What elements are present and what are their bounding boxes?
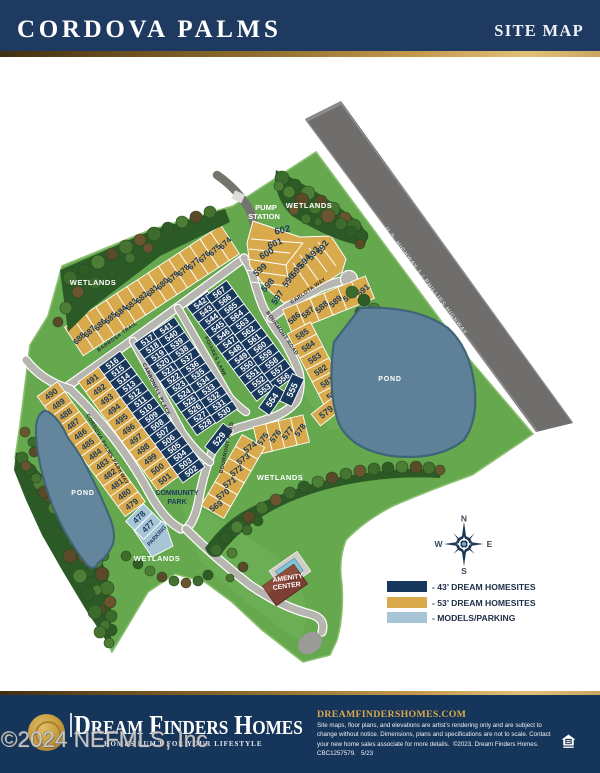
- svg-text:POND: POND: [378, 376, 401, 383]
- svg-text:WETLANDS: WETLANDS: [134, 554, 181, 563]
- svg-text:WETLANDS: WETLANDS: [70, 278, 117, 287]
- svg-text:- 53’ DREAM HOMESITES: - 53’ DREAM HOMESITES: [432, 598, 536, 608]
- svg-text:W: W: [434, 539, 443, 549]
- svg-text:STATION: STATION: [248, 212, 280, 221]
- svg-text:N: N: [461, 514, 467, 524]
- svg-text:WETLANDS: WETLANDS: [286, 201, 333, 210]
- svg-text:COMMUNITY: COMMUNITY: [155, 490, 198, 497]
- svg-text:- MODELS/PARKING: - MODELS/PARKING: [432, 613, 516, 623]
- svg-text:WETLANDS: WETLANDS: [257, 473, 304, 482]
- svg-text:- 43’ DREAM HOMESITES: - 43’ DREAM HOMESITES: [432, 582, 536, 592]
- svg-text:E: E: [487, 539, 493, 549]
- svg-text:PUMP: PUMP: [255, 203, 277, 212]
- svg-text:S: S: [461, 566, 467, 576]
- svg-text:PARK: PARK: [167, 499, 186, 506]
- svg-text:POND: POND: [71, 490, 94, 497]
